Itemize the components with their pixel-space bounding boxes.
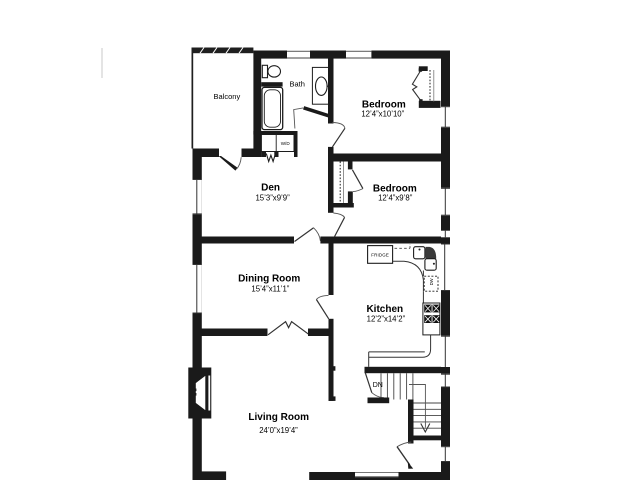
svg-text:Dining Room: Dining Room [238,274,300,285]
svg-text:12’4”x10’10”: 12’4”x10’10” [361,109,404,118]
svg-text:Den: Den [261,182,280,193]
svg-text:DN: DN [373,382,383,389]
svg-text:Balcony: Balcony [214,92,241,101]
svg-text:15’4”x11’1”: 15’4”x11’1” [251,285,289,294]
svg-text:W/D: W/D [281,141,291,146]
svg-text:12’4”x9’8”: 12’4”x9’8” [378,194,413,203]
svg-text:15’3”x9’9”: 15’3”x9’9” [255,194,290,203]
svg-text:FRIDGE: FRIDGE [371,252,389,257]
svg-text:Bath: Bath [289,79,304,88]
svg-text:24’0”x19’4”: 24’0”x19’4” [259,426,298,435]
svg-text:12’2”x14’2”: 12’2”x14’2” [367,315,406,324]
svg-text:Kitchen: Kitchen [366,304,403,315]
svg-text:DW: DW [429,278,434,285]
svg-text:Living Room: Living Room [248,412,309,423]
